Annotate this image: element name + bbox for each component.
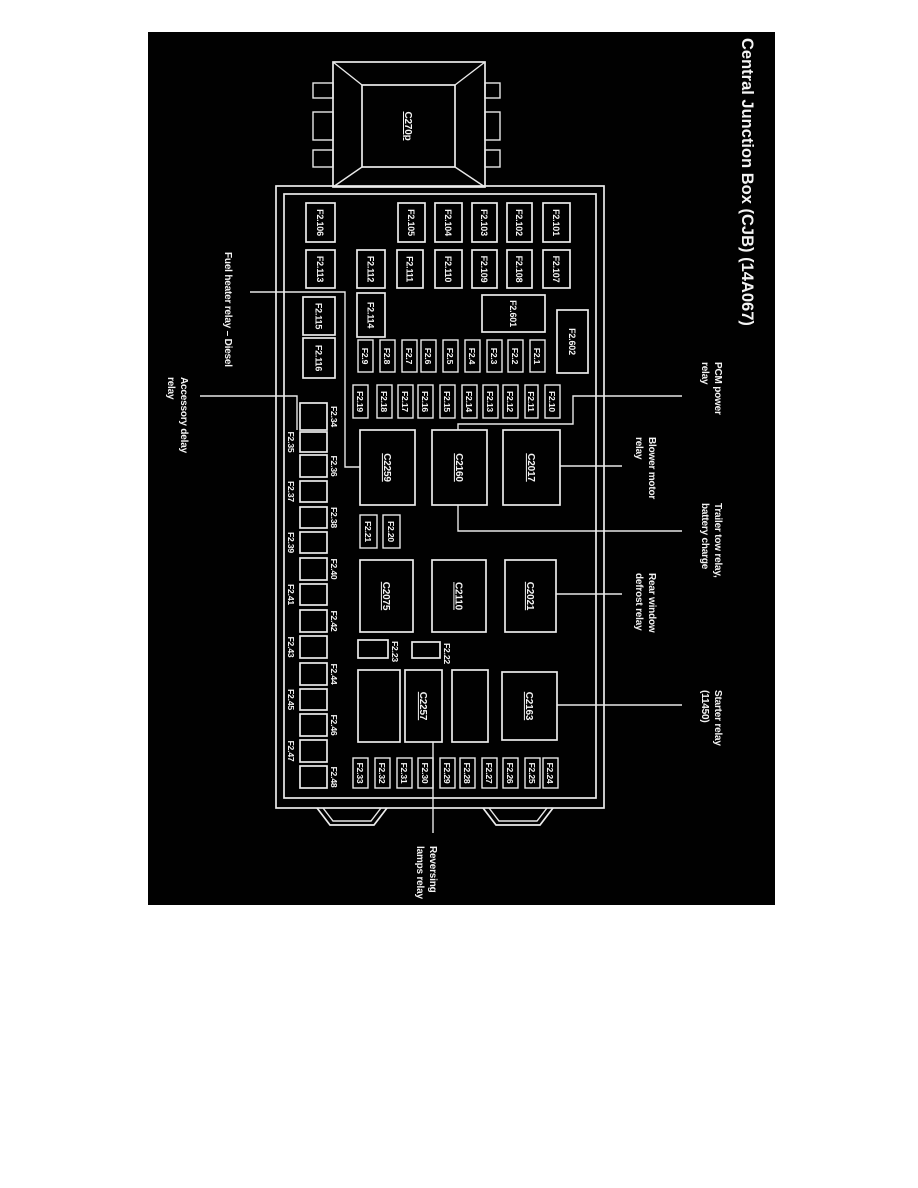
fuse-label: F2.37 — [286, 481, 296, 502]
fuse-label: F2.47 — [286, 741, 296, 762]
fuse-label: F2.22 — [442, 643, 452, 664]
fuse-label: F2.20 — [386, 521, 396, 542]
connector-tab — [313, 83, 333, 98]
fuse-label: F2.27 — [484, 763, 494, 784]
fuse-label: F2.15 — [442, 391, 452, 412]
relay-label: C2160 — [453, 453, 464, 482]
connector-c270p-label: C270p — [402, 111, 413, 140]
blower-motor-relay-label: relay — [633, 437, 644, 460]
fuse-label: F2.38 — [329, 507, 339, 528]
fuse-label: F2.112 — [366, 256, 376, 283]
fuse-label: F2.2 — [510, 348, 520, 365]
reversing-lamps-relay-label: Reversing — [427, 846, 438, 893]
accessory-delay-relay-line — [200, 396, 297, 430]
fuse-label: F2.40 — [329, 559, 339, 580]
fuse-label: F2.13 — [485, 391, 495, 412]
fuse-label: F2.31 — [399, 763, 409, 784]
fuse-label: F2.17 — [400, 391, 410, 412]
fuse-label: F2.115 — [314, 303, 324, 330]
fuse-box-f2-48 — [300, 766, 327, 788]
manual-page: Central Junction Box (CJB) (14A067) C270… — [0, 0, 918, 1188]
fuse-label: F2.7 — [404, 348, 414, 365]
fuse-label: F2.6 — [423, 348, 433, 365]
connector-tab — [485, 112, 500, 140]
fuse-label: F2.11 — [526, 391, 536, 412]
fuse-box-f2-34 — [300, 403, 327, 430]
fuse-label: F2.10 — [547, 391, 557, 412]
fuse-label: F2.3 — [489, 348, 499, 365]
figure-title: Central Junction Box (CJB) (14A067) — [738, 38, 756, 326]
fuse-label: F2.28 — [462, 763, 472, 784]
trailer-tow-relay-line — [458, 505, 682, 531]
starter-relay-label: (11450) — [699, 690, 710, 723]
connector-tab — [313, 150, 333, 167]
fuse-box-f2-44 — [300, 663, 327, 685]
fuse-box-f2-35 — [300, 432, 327, 452]
relay-label: C2257 — [417, 692, 428, 721]
fuse-label: F2.43 — [286, 637, 296, 658]
pcm-power-relay-label: PCM power — [712, 362, 723, 415]
fuse-label: F2.109 — [479, 256, 489, 283]
fuse-box-f2-38 — [300, 507, 327, 528]
fuse-label: F2.29 — [442, 763, 452, 784]
connector-tab — [485, 83, 500, 98]
fuel-heater-relay-line — [250, 292, 360, 467]
fuse-label: F2.21 — [363, 521, 373, 542]
fuse-label: F2.48 — [329, 767, 339, 788]
cjb-diagram: Central Junction Box (CJB) (14A067) C270… — [148, 32, 775, 905]
fuse-label: F2.102 — [514, 209, 524, 236]
trailer-tow-relay-label: battery charge — [699, 503, 710, 570]
fuse-label: F2.105 — [406, 209, 416, 236]
cjb-figure: Central Junction Box (CJB) (14A067) C270… — [148, 32, 775, 905]
rear-window-defrost-relay-label: Rear window — [646, 573, 657, 633]
fuse-label: F2.25 — [527, 763, 537, 784]
fuse-label: F2.23 — [390, 641, 400, 662]
fuse-label: F2.16 — [420, 391, 430, 412]
connector-tab — [313, 112, 333, 140]
fuse-label: F2.106 — [315, 209, 325, 236]
fuse-label: F2.26 — [505, 763, 515, 784]
fuse-label: F2.45 — [286, 689, 296, 710]
fuse-label: F2.12 — [505, 391, 515, 412]
fuse-box-f2-23 — [358, 640, 388, 658]
fuse-box-f2-37 — [300, 481, 327, 502]
fuse-label: F2.111 — [405, 256, 415, 282]
fusebox-outline-inner — [284, 194, 596, 798]
relay-box-unlabeled — [452, 670, 488, 742]
fuse-label: F2.601 — [508, 300, 518, 327]
accessory-delay-relay-label: Accessory delay — [178, 377, 189, 454]
relay-box-unlabeled — [358, 670, 400, 742]
fuse-label: F2.5 — [445, 348, 455, 365]
fuse-label: F2.104 — [443, 209, 453, 236]
fuse-label: F2.46 — [329, 715, 339, 736]
fuse-box-f2-22 — [412, 642, 440, 658]
fuse-label: F2.36 — [329, 456, 339, 477]
fuse-label: F2.107 — [551, 256, 561, 283]
connector-c270p: C270p — [313, 62, 500, 187]
fuse-box-f2-45 — [300, 689, 327, 710]
fuse-label: F2.4 — [467, 348, 477, 365]
fuse-label: F2.44 — [329, 664, 339, 685]
fuse-box-f2-36 — [300, 455, 327, 477]
fuse-label: F2.30 — [420, 763, 430, 784]
blower-motor-relay-label: Blower motor — [646, 437, 657, 499]
trailer-tow-relay-label: Trailer tow relay, — [712, 503, 723, 578]
fuse-label: F2.116 — [314, 345, 324, 372]
fuse-box-f2-41 — [300, 584, 327, 605]
fuse-label: F2.34 — [329, 406, 339, 427]
fuse-label: F2.1 — [532, 348, 542, 365]
mounting-foot — [483, 808, 553, 825]
fuse-label: F2.35 — [286, 432, 296, 453]
accessory-delay-relay-label: relay — [165, 377, 176, 400]
fuse-box-f2-39 — [300, 532, 327, 553]
pcm-power-relay-label: relay — [699, 362, 710, 385]
fuse-label: F2.18 — [379, 391, 389, 412]
fuse-box-f2-46 — [300, 714, 327, 736]
fuse-label: F2.19 — [355, 391, 365, 412]
fuse-label: F2.33 — [355, 763, 365, 784]
fuse-label: F2.113 — [315, 256, 325, 283]
fuse-label: F2.42 — [329, 611, 339, 632]
fuse-label: F2.101 — [551, 209, 561, 236]
relay-label: C2259 — [381, 453, 392, 482]
relay-label: C2021 — [524, 582, 535, 611]
fuse-label: F2.114 — [366, 302, 376, 329]
fuse-label: F2.24 — [545, 763, 555, 784]
fuse-label: F2.8 — [382, 348, 392, 365]
fuse-label: F2.9 — [360, 348, 370, 365]
fuse-label: F2.41 — [286, 584, 296, 605]
fuse-label: F2.108 — [514, 256, 524, 283]
fuse-box-f2-43 — [300, 636, 327, 658]
relay-label: C2163 — [523, 692, 534, 721]
relay-label: C2075 — [380, 582, 391, 611]
fuse-label: F2.110 — [443, 256, 453, 283]
reversing-lamps-relay-label: lamps relay — [414, 846, 425, 899]
relay-label: C2017 — [525, 453, 536, 482]
relay-label: C2110 — [452, 582, 463, 611]
rear-window-defrost-relay-label: defrost relay — [633, 573, 644, 631]
fuel-heater-relay-label: Fuel heater relay – Diesel — [222, 252, 233, 367]
connector-tab — [485, 150, 500, 167]
fuse-box-f2-42 — [300, 610, 327, 632]
mounting-foot-inner — [489, 808, 547, 821]
starter-relay-label: Starter relay — [712, 690, 723, 746]
fuse-box-f2-47 — [300, 740, 327, 762]
fuse-label: F2.103 — [479, 209, 489, 236]
fuse-label: F2.39 — [286, 532, 296, 553]
mounting-foot — [317, 808, 387, 825]
fuse-label: F2.602 — [567, 328, 577, 355]
mounting-foot-inner — [323, 808, 381, 821]
fuse-box-f2-40 — [300, 558, 327, 580]
fuse-label: F2.14 — [464, 391, 474, 412]
fuse-label: F2.32 — [377, 763, 387, 784]
